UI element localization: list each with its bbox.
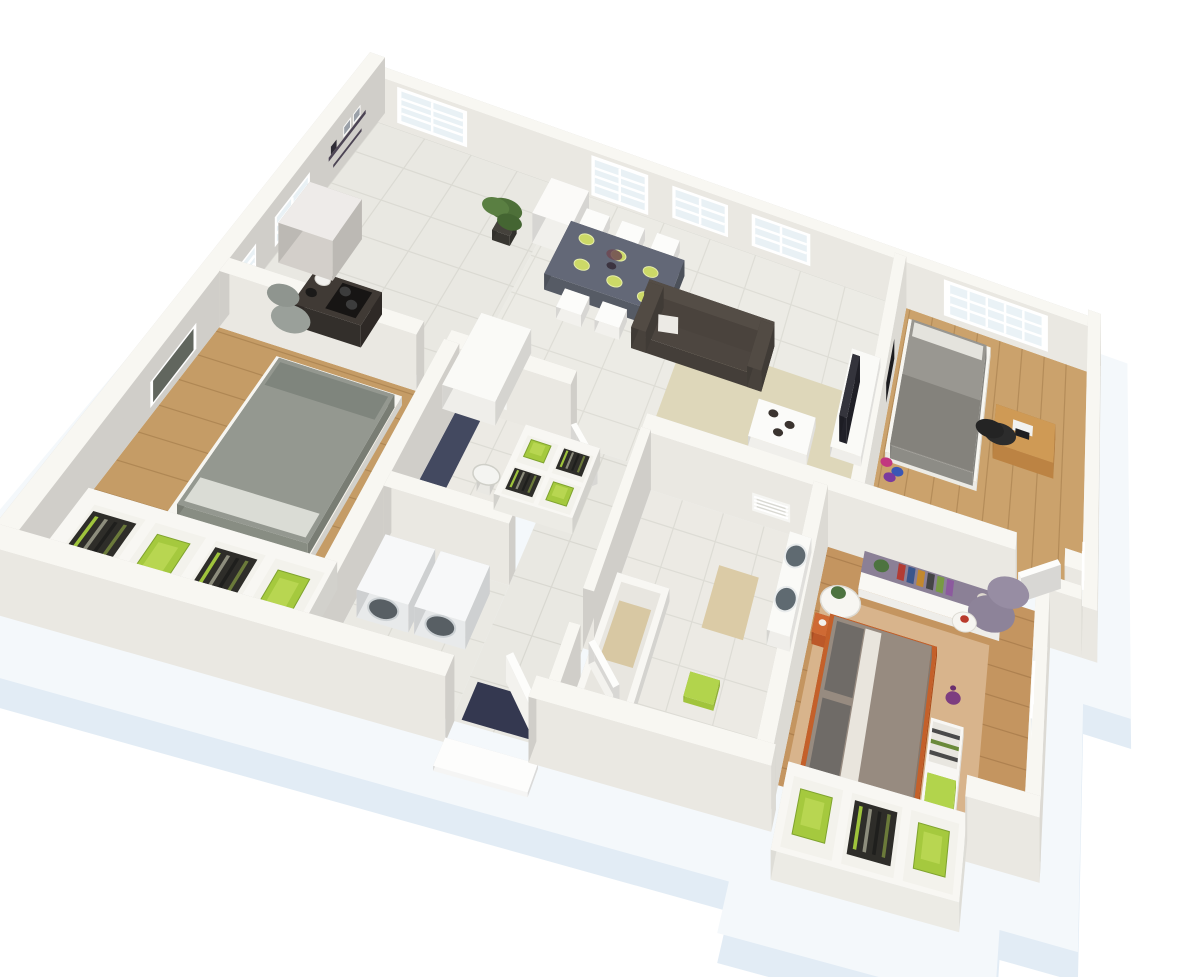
floor-plan-3d-render [0,0,1200,977]
isometric-floor-plan-scene [0,0,1200,977]
sofa-white-pillow [658,314,678,334]
